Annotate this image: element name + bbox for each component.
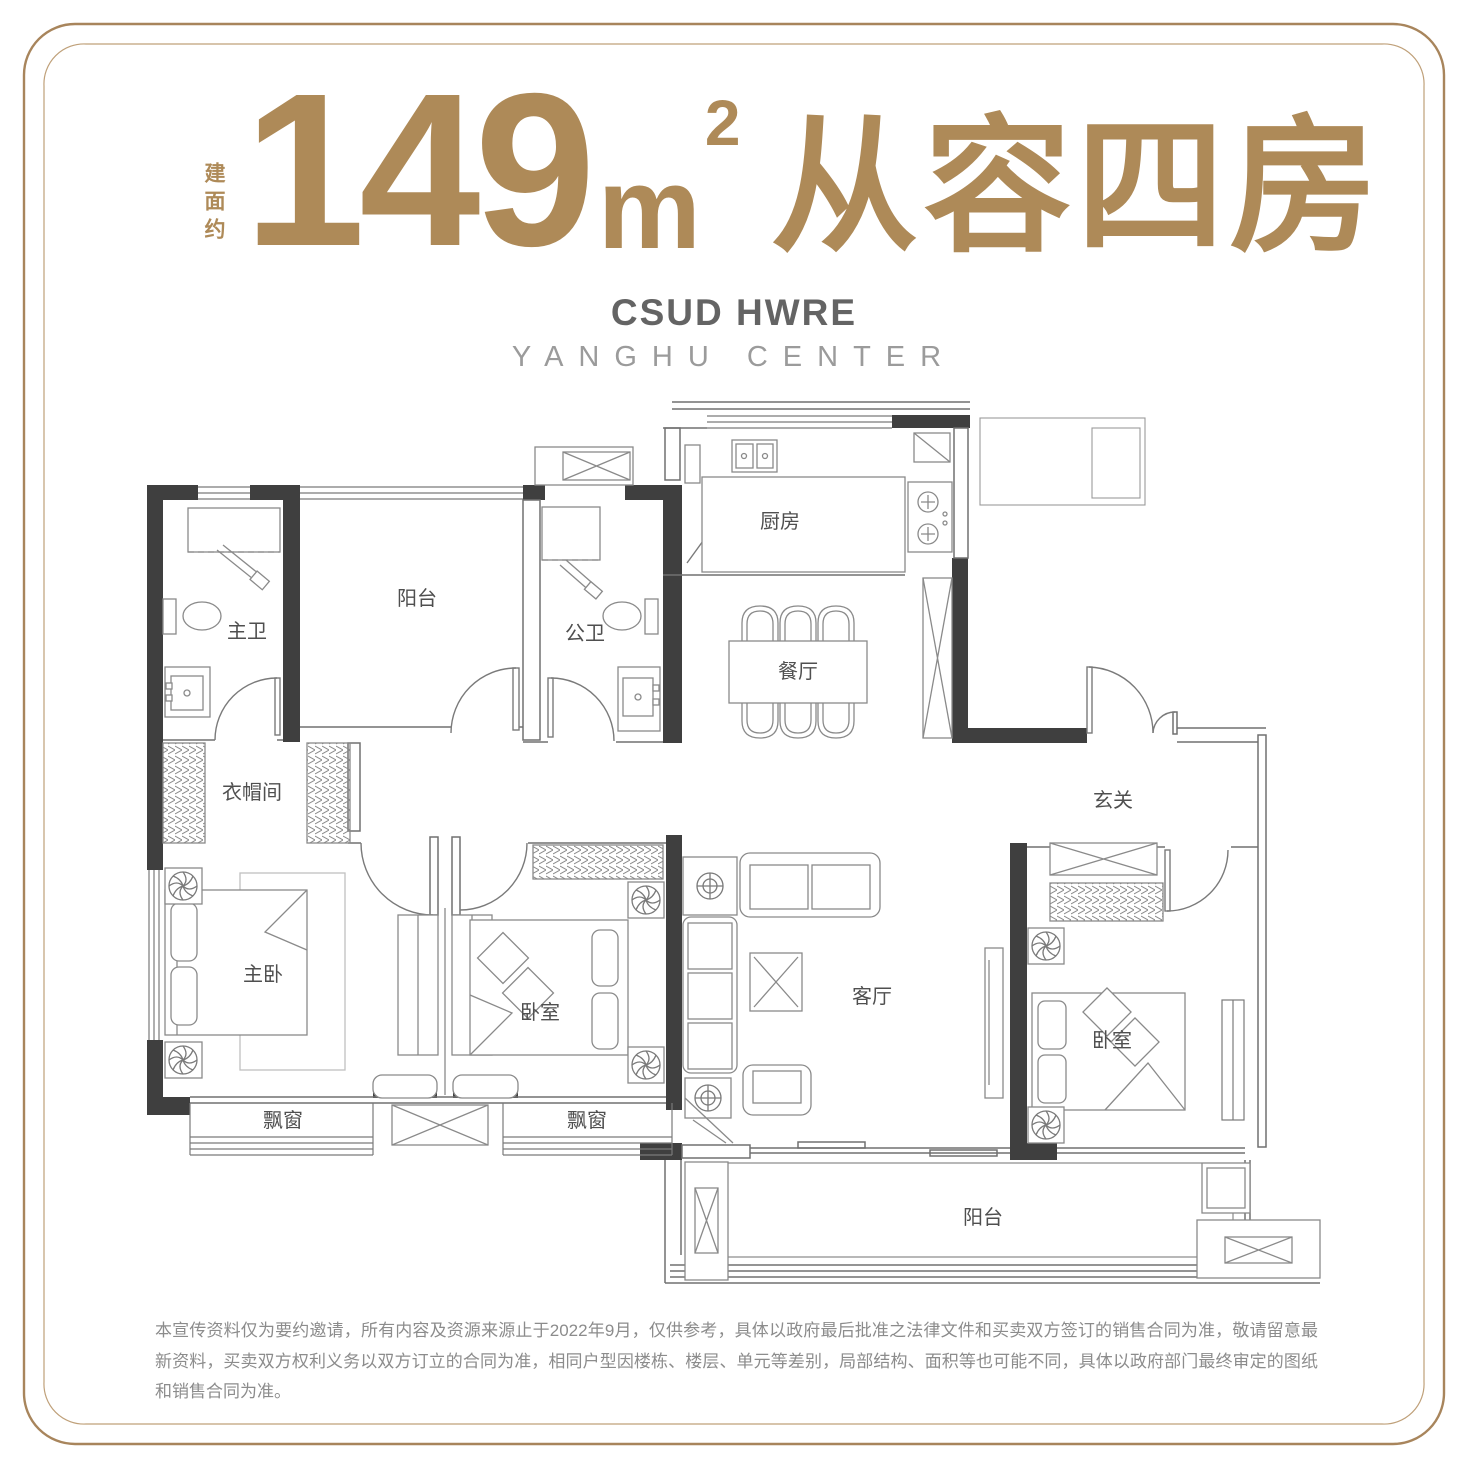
brand-subname: YANGHU CENTER bbox=[0, 341, 1468, 374]
label-balcony-top: 阳台 bbox=[397, 587, 437, 610]
area-number: 149 bbox=[244, 86, 590, 256]
built-area-label: 建面约 bbox=[198, 162, 228, 246]
label-dining: 餐厅 bbox=[778, 660, 818, 683]
headline-text: 从容四房 bbox=[770, 120, 1382, 256]
label-bay-window-right: 飘窗 bbox=[567, 1109, 607, 1132]
label-foyer: 玄关 bbox=[1093, 789, 1133, 812]
headline: 建面约 149 m 2 从容四房 bbox=[198, 86, 1382, 256]
area-unit-superscript: 2 bbox=[705, 86, 741, 160]
label-master-bedroom: 主卧 bbox=[243, 963, 283, 986]
label-balcony-bottom: 阳台 bbox=[963, 1206, 1003, 1229]
bedroom-mid-furniture bbox=[373, 845, 664, 1145]
bedroom-right-furniture bbox=[1028, 843, 1185, 1143]
label-living: 客厅 bbox=[852, 985, 892, 1008]
living-room-furniture bbox=[683, 853, 1003, 1143]
disclaimer-text: 本宣传资料仅为要约邀请，所有内容及资源来源止于2022年9月，仅供参考，具体以政… bbox=[155, 1316, 1318, 1408]
label-bedroom-right: 卧室 bbox=[1092, 1029, 1132, 1052]
master-bath-fixtures bbox=[163, 508, 280, 717]
dining-furniture bbox=[729, 578, 952, 738]
floor-plan: 主卫 阳台 公卫 厨房 餐厅 玄关 衣帽间 主卧 卧室 客厅 卧室 飘窗 飘窗 … bbox=[140, 395, 1350, 1300]
brand-name: CSUD HWRE bbox=[0, 292, 1468, 334]
adjacent-structures bbox=[980, 418, 1145, 505]
label-bay-window-left: 飘窗 bbox=[263, 1109, 303, 1132]
label-bedroom-mid: 卧室 bbox=[520, 1001, 560, 1024]
label-kitchen: 厨房 bbox=[760, 510, 800, 533]
flyer-page: 建面约 149 m 2 从容四房 CSUD HWRE YANGHU CENTER bbox=[0, 0, 1468, 1468]
area-unit: m bbox=[598, 161, 701, 256]
kitchen-fixtures bbox=[685, 433, 952, 572]
label-master-bath: 主卫 bbox=[227, 620, 267, 643]
subtitle: CSUD HWRE YANGHU CENTER bbox=[0, 292, 1468, 374]
label-cloakroom: 衣帽间 bbox=[222, 781, 282, 804]
label-guest-bath: 公卫 bbox=[565, 623, 605, 645]
